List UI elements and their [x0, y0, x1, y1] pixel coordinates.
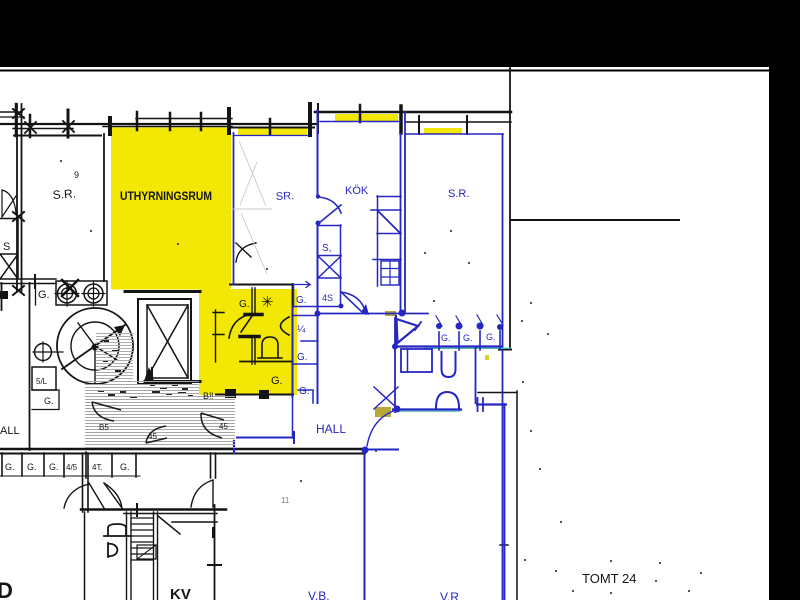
svg-text:S.R.: S.R.	[448, 188, 469, 200]
svg-text:G.: G.	[5, 462, 15, 472]
svg-text:G.: G.	[296, 295, 307, 306]
svg-text:G.: G.	[49, 462, 59, 472]
svg-text:G.: G.	[239, 299, 250, 310]
svg-text:UTHYRNINGSRUM: UTHYRNINGSRUM	[120, 191, 212, 203]
svg-text:G.: G.	[486, 332, 496, 342]
svg-text:TOMT 24: TOMT 24	[582, 571, 636, 586]
svg-text:KV: KV	[170, 586, 191, 600]
svg-text:G.: G.	[297, 352, 308, 363]
svg-text:G.: G.	[44, 396, 54, 406]
svg-text:D: D	[0, 578, 13, 600]
svg-text:45: 45	[219, 422, 228, 431]
svg-text:G.: G.	[441, 333, 451, 343]
svg-text:B‼: B‼	[203, 391, 214, 401]
svg-text:ALL: ALL	[0, 425, 20, 437]
svg-text:S,: S,	[322, 243, 331, 254]
svg-text:S.R.: S.R.	[52, 186, 76, 202]
svg-text:V.R: V.R	[440, 590, 459, 600]
svg-text:HALL: HALL	[316, 422, 346, 436]
svg-text:SR.: SR.	[276, 190, 295, 203]
svg-text:4/5: 4/5	[66, 463, 78, 472]
svg-text:S: S	[3, 241, 10, 253]
svg-text:G.: G.	[120, 462, 130, 472]
svg-text:45: 45	[148, 432, 157, 441]
svg-text:V.B.: V.B.	[308, 589, 330, 600]
svg-text:5/L: 5/L	[36, 377, 48, 386]
svg-text:KÖK: KÖK	[345, 185, 369, 197]
svg-text:9: 9	[74, 170, 79, 180]
svg-text:✳: ✳	[261, 294, 274, 311]
svg-text:G.: G.	[271, 375, 283, 387]
svg-text:B5: B5	[99, 423, 109, 432]
svg-text:G.: G.	[27, 462, 37, 472]
svg-text:G.: G.	[463, 333, 473, 343]
svg-text:¼: ¼	[297, 323, 306, 335]
svg-text:G.: G.	[299, 386, 310, 397]
svg-text:G.: G.	[38, 289, 50, 301]
svg-text:11: 11	[281, 496, 290, 505]
svg-text:4T.: 4T.	[92, 463, 103, 472]
svg-text:4S: 4S	[322, 293, 333, 303]
